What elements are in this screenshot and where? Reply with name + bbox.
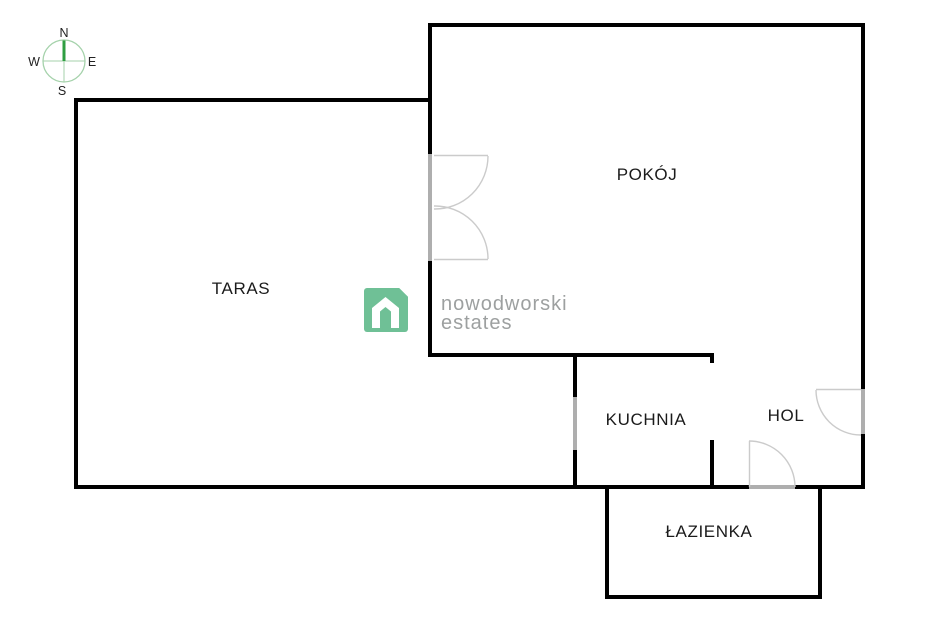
- wall-right-lower: [861, 434, 865, 489]
- room-label-kuchnia: KUCHNIA: [606, 410, 687, 430]
- wall-pokoj-bottom-endcap: [710, 357, 714, 363]
- compass-east-label: E: [88, 55, 96, 69]
- wall-right-upper: [861, 23, 865, 389]
- wall-pokoj-left-upper: [428, 23, 432, 154]
- wall-lazienka-right: [818, 489, 822, 595]
- wall-taras-left: [74, 98, 78, 489]
- lazienka-door-arc: [749, 441, 795, 487]
- wall-bottom-right-segment: [795, 485, 865, 489]
- compass-south-label: S: [58, 84, 66, 98]
- opening-lazienka-door: [749, 485, 795, 489]
- opening-kuchnia-window: [573, 397, 577, 450]
- room-label-hol: HOL: [768, 406, 805, 426]
- floor-plan: N S W E TARAS POKÓJ KUCHNIA HOL ŁAZIENKA: [0, 0, 930, 626]
- wall-bottom-left-segment: [74, 485, 749, 489]
- brand-logo: [364, 288, 408, 332]
- wall-kuchnia-left-lower: [573, 450, 577, 485]
- wall-pokoj-top: [428, 23, 865, 27]
- entrance-door-arc: [816, 390, 861, 435]
- wall-kuchnia-hol-stub: [710, 440, 714, 485]
- wall-lazienka-bottom: [605, 595, 822, 599]
- room-label-pokoj: POKÓJ: [617, 165, 678, 185]
- opening-french-door-pokoj: [428, 154, 432, 261]
- french-door-top-arc: [434, 156, 488, 209]
- wall-lazienka-left: [605, 489, 609, 599]
- compass-north-label: N: [59, 26, 68, 40]
- wall-pokoj-left-lower: [428, 261, 432, 357]
- room-label-taras: TARAS: [212, 279, 270, 299]
- brand-name-line2: estates: [441, 314, 568, 333]
- house-n-icon: [364, 288, 408, 332]
- wall-taras-top: [74, 98, 432, 102]
- wall-pokoj-bottom: [428, 353, 714, 357]
- room-label-lazienka: ŁAZIENKA: [666, 522, 753, 542]
- wall-kuchnia-left-upper: [573, 357, 577, 397]
- opening-entrance-door: [861, 389, 865, 434]
- brand-wordmark: nowodworski estates: [441, 295, 568, 333]
- compass-west-label: W: [28, 55, 40, 69]
- french-door-bottom-arc: [434, 206, 488, 259]
